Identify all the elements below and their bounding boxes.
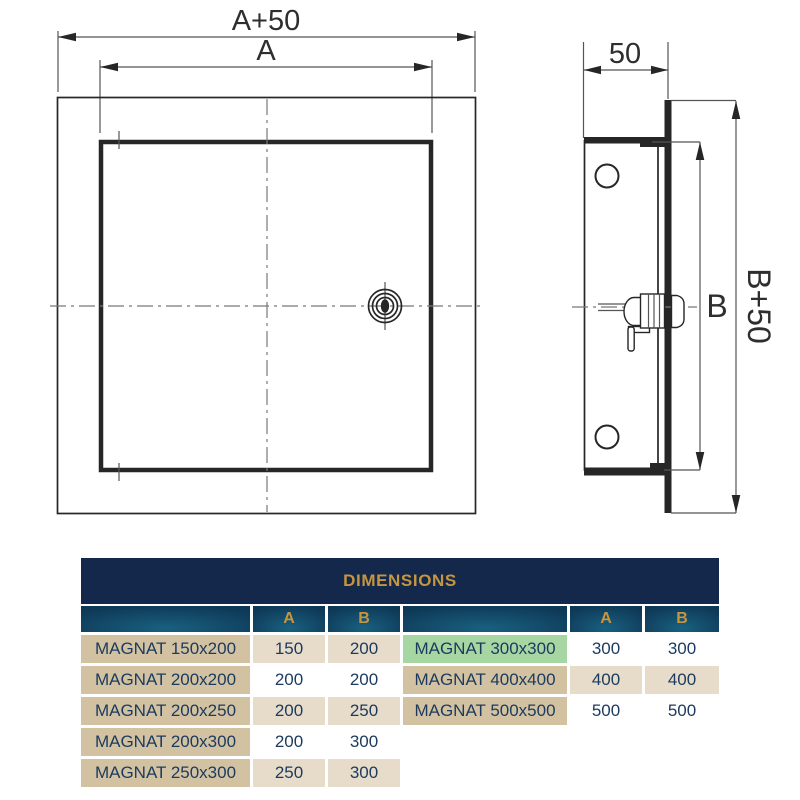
value-b-cell: 500 — [645, 697, 719, 725]
value-a-cell: 250 — [253, 759, 325, 787]
side-view: 50 — [572, 38, 777, 513]
table-right-half: A B MAGNAT 300x300 300 300 MAGNAT 400x40… — [403, 606, 719, 787]
mounting-hole-top — [596, 165, 619, 188]
mounting-hole-bottom — [596, 426, 619, 449]
model-name-cell: MAGNAT 150x200 — [81, 635, 250, 663]
model-name-cell: MAGNAT 200x250 — [81, 697, 250, 725]
lock-knob — [672, 296, 685, 328]
value-b-cell: 400 — [645, 666, 719, 694]
model-name-cell: MAGNAT 250x300 — [81, 759, 250, 787]
dim-label-b-plus-50: B+50 — [741, 268, 777, 344]
dim-label-a: A — [256, 35, 276, 67]
col-header-b: B — [645, 606, 719, 632]
header-name-cell — [81, 606, 250, 632]
side-bottom-return — [584, 468, 665, 476]
dim-50: 50 — [584, 38, 669, 138]
dim-label-50: 50 — [609, 38, 641, 70]
value-a-cell: 400 — [570, 666, 642, 694]
lock-slot — [381, 299, 389, 313]
dim-label-b: B — [706, 288, 727, 324]
access-panel-spec-sheet: A+50 A — [0, 0, 800, 800]
col-header-b: B — [328, 606, 400, 632]
model-name-cell: MAGNAT 200x300 — [81, 728, 250, 756]
table-left-half: A B MAGNAT 150x200 150 200 MAGNAT 200x20… — [81, 606, 400, 787]
value-b-cell: 300 — [328, 759, 400, 787]
front-view: A+50 A — [50, 5, 483, 514]
value-a-cell: 500 — [570, 697, 642, 725]
model-name-cell-highlighted: MAGNAT 300x300 — [403, 635, 567, 663]
value-a-cell: 200 — [253, 697, 325, 725]
side-top-step — [640, 144, 665, 148]
value-b-cell: 300 — [328, 728, 400, 756]
model-name-cell: MAGNAT 400x400 — [403, 666, 567, 694]
dimensions-table: DIMENSIONS A B MAGNAT 150x200 150 200 MA… — [81, 558, 719, 787]
dim-label-a-plus-50: A+50 — [232, 5, 301, 37]
dim-a: A — [100, 35, 432, 133]
value-a-cell: 200 — [253, 666, 325, 694]
table-title: DIMENSIONS — [81, 558, 719, 604]
technical-drawing: A+50 A — [0, 0, 800, 548]
value-b-cell: 250 — [328, 697, 400, 725]
value-b-cell: 200 — [328, 635, 400, 663]
col-header-a: A — [570, 606, 642, 632]
model-name-cell: MAGNAT 500x500 — [403, 697, 567, 725]
lock-barrel — [641, 294, 665, 328]
value-b-cell: 200 — [328, 666, 400, 694]
table-body: A B MAGNAT 150x200 150 200 MAGNAT 200x20… — [81, 606, 719, 787]
value-a-cell: 300 — [570, 635, 642, 663]
header-name-cell — [403, 606, 567, 632]
lock-cap — [624, 298, 641, 326]
value-a-cell: 150 — [253, 635, 325, 663]
value-b-cell: 300 — [645, 635, 719, 663]
col-header-a: A — [253, 606, 325, 632]
value-a-cell: 200 — [253, 728, 325, 756]
cam-arm-vertical — [628, 327, 634, 351]
model-name-cell: MAGNAT 200x200 — [81, 666, 250, 694]
